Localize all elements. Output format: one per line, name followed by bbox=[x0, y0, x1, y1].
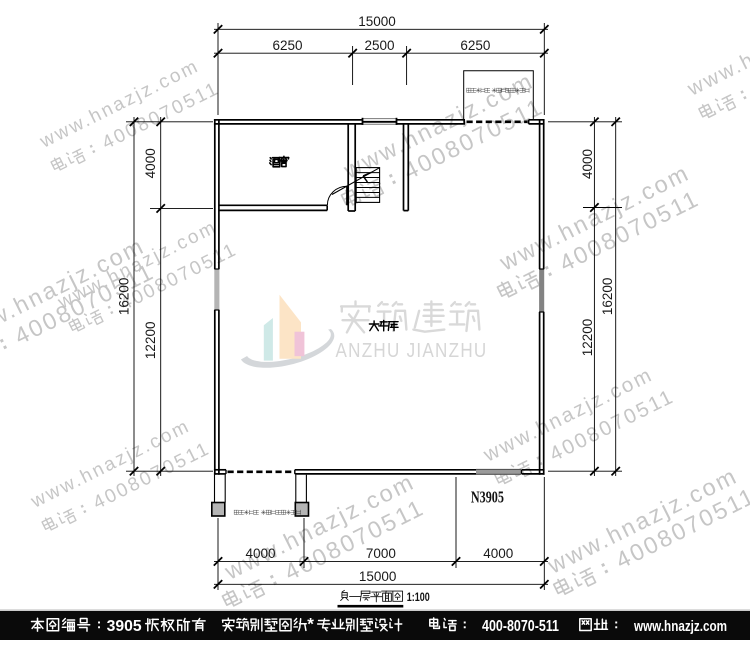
svg-text:4000: 4000 bbox=[143, 148, 158, 178]
svg-text:*: * bbox=[307, 615, 314, 634]
svg-text:1:100: 1:100 bbox=[407, 590, 430, 604]
svg-text:400-8070-511: 400-8070-511 bbox=[482, 618, 559, 635]
svg-text:3905: 3905 bbox=[107, 618, 142, 635]
svg-text:ANZHU JIANZHU: ANZHU JIANZHU bbox=[336, 340, 488, 362]
svg-text:6250: 6250 bbox=[272, 38, 302, 53]
svg-text:12200: 12200 bbox=[143, 322, 158, 360]
svg-text:2500: 2500 bbox=[364, 38, 394, 53]
svg-text:15000: 15000 bbox=[359, 569, 397, 584]
svg-text:15000: 15000 bbox=[358, 14, 396, 29]
svg-text:7000: 7000 bbox=[366, 546, 396, 561]
svg-text:16200: 16200 bbox=[600, 278, 615, 316]
svg-text:12200: 12200 bbox=[580, 319, 595, 357]
svg-text:4000: 4000 bbox=[245, 546, 275, 561]
svg-text:4000: 4000 bbox=[580, 149, 595, 179]
svg-text:16200: 16200 bbox=[117, 278, 132, 316]
svg-text:4000: 4000 bbox=[483, 546, 513, 561]
svg-text:N3905: N3905 bbox=[471, 488, 504, 507]
svg-text:www.hnazjz.com: www.hnazjz.com bbox=[633, 618, 727, 635]
svg-text:6250: 6250 bbox=[460, 38, 490, 53]
